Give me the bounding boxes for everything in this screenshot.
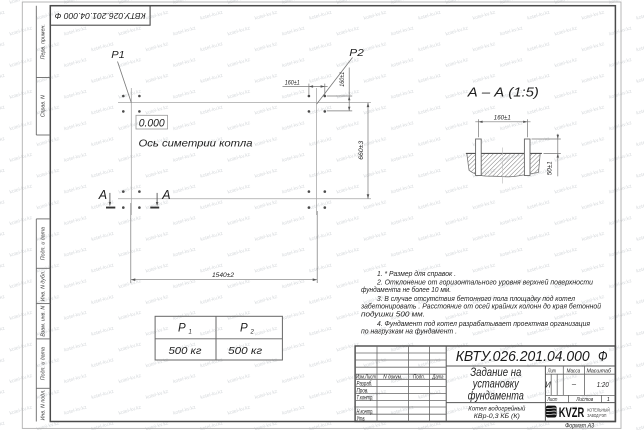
svg-text:P1: P1 <box>111 49 125 61</box>
svg-text:ЗАВОД РЭП: ЗАВОД РЭП <box>587 413 606 418</box>
svg-text:Ф: Ф <box>598 349 608 365</box>
svg-text:Лист: Лист <box>547 397 558 403</box>
svg-text:160±1: 160±1 <box>494 114 511 121</box>
svg-text:1. * Размер для справок .: 1. * Размер для справок . <box>377 270 456 278</box>
svg-text:160±1: 160±1 <box>285 79 300 86</box>
svg-text:Масштаб: Масштаб <box>586 368 611 374</box>
svg-text:Инв. N дубл.: Инв. N дубл. <box>41 271 47 302</box>
svg-text:И: И <box>545 380 551 389</box>
svg-text:1540±2: 1540±2 <box>212 272 234 279</box>
svg-text:Справ. N: Справ. N <box>41 95 47 117</box>
svg-text:Перв. примен.: Перв. примен. <box>41 24 47 59</box>
svg-text:500 кг: 500 кг <box>228 345 262 357</box>
svg-text:Н.контр.: Н.контр. <box>357 410 374 416</box>
svg-text:установку: установку <box>472 379 520 391</box>
svg-text:А – А (1:5): А – А (1:5) <box>467 85 539 100</box>
svg-text:N докум.: N докум. <box>383 374 402 380</box>
svg-text:1: 1 <box>607 397 610 403</box>
svg-text:Утв.: Утв. <box>356 416 366 422</box>
svg-text:P2: P2 <box>349 47 364 59</box>
svg-text:КВТУ.026.201.04.000: КВТУ.026.201.04.000 <box>456 349 590 365</box>
svg-text:Разраб.: Разраб. <box>357 381 373 387</box>
svg-text:Инв. N подл.: Инв. N подл. <box>41 389 47 420</box>
svg-text:Лит: Лит <box>547 368 556 374</box>
svg-text:Подп.: Подп. <box>413 374 425 380</box>
svg-text:2. Отклонение от горизонтальн: 2. Отклонение от горизонтального уровня … <box>376 279 593 287</box>
svg-text:A: A <box>98 188 107 202</box>
svg-text:–: – <box>571 380 577 389</box>
svg-text:KVZR: KVZR <box>559 404 585 420</box>
svg-text:КОТЕЛЬНЫЙ: КОТЕЛЬНЫЙ <box>587 405 609 412</box>
svg-text:фундамента не более 10 мм.: фундамента не более 10 мм. <box>361 286 451 294</box>
svg-text:Подп. и дата: Подп. и дата <box>41 227 47 260</box>
svg-text:Масса: Масса <box>567 368 581 374</box>
svg-text:забетонировать . Расстояние о: забетонировать . Расстояние от осей край… <box>360 303 601 311</box>
svg-text:P: P <box>240 323 248 335</box>
svg-text:160±1: 160±1 <box>339 71 346 86</box>
svg-text:1:20: 1:20 <box>597 380 610 389</box>
svg-text:Взам. инв. N: Взам. инв. N <box>41 306 47 337</box>
svg-text:P: P <box>178 323 186 335</box>
svg-text:Котел водогрейный: Котел водогрейный <box>468 405 525 413</box>
svg-text:50±1: 50±1 <box>546 161 553 175</box>
svg-text:Формат А3: Формат А3 <box>565 424 595 430</box>
svg-text:660±3: 660±3 <box>358 140 365 159</box>
svg-text:Дата: Дата <box>432 374 444 380</box>
svg-text:Т.контр.: Т.контр. <box>357 396 374 402</box>
svg-text:3. В случае отсутствия бетонн: 3. В случае отсутствия бетонного пола пл… <box>377 295 575 303</box>
svg-text:1: 1 <box>189 330 192 336</box>
svg-text:Ось симетрии котла: Ось симетрии котла <box>139 137 253 149</box>
svg-text:0.000: 0.000 <box>139 117 166 129</box>
svg-text:Задание на: Задание на <box>470 367 521 379</box>
svg-text:Пров.: Пров. <box>357 388 369 394</box>
svg-text:Изм.Лист: Изм.Лист <box>356 374 376 380</box>
svg-text:500 кг: 500 кг <box>169 345 202 357</box>
svg-text:Листов: Листов <box>575 397 593 403</box>
svg-text:Подп. и дата: Подп. и дата <box>41 347 47 380</box>
svg-text:по нагрузкам на фундамент .: по нагрузкам на фундамент . <box>361 328 457 336</box>
svg-text:КВТУ.026.201.04.000 Ф: КВТУ.026.201.04.000 Ф <box>54 11 145 21</box>
svg-text:4. Фундамент под котел разраб: 4. Фундамент под котел разрабатывает про… <box>377 320 590 328</box>
svg-text:КВр-0,3 КБ (К): КВр-0,3 КБ (К) <box>474 413 520 420</box>
svg-text:фундамента: фундамента <box>468 390 524 402</box>
svg-text:2: 2 <box>250 330 255 336</box>
svg-text:A: A <box>161 188 170 202</box>
svg-text:подушки 500 мм.: подушки 500 мм. <box>361 310 425 318</box>
